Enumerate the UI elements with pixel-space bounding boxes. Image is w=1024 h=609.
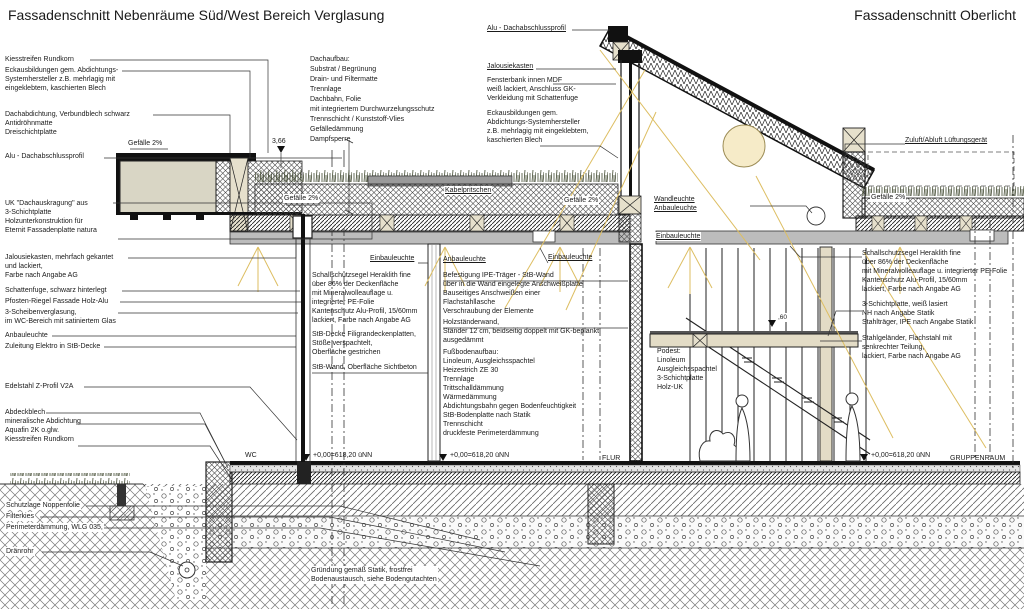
label-draenrohr: Dränrohr: [5, 547, 35, 556]
sitting-child: [699, 430, 740, 461]
label-gelaender: Stahlgeländer, Flachstahl mit senkrechte…: [862, 334, 961, 361]
label-alu-profil-right: Alu - Dachabschlussprofil: [487, 24, 566, 33]
label-abdeckblech: Abdeckblech mineralische Abdichtung Aqua…: [5, 408, 81, 444]
label-uk-dachauskragung: UK "Dachauskragung" aus 3-Schichtplatte …: [5, 199, 97, 235]
label-kiesstreifen-top: Kiesstreifen Rundkorn: [5, 55, 74, 64]
wall-lamp-symbol: [807, 207, 825, 225]
ventilation-unit-outline: [868, 152, 1014, 186]
label-schallschutz-right: Schallschutzsegel Heraklith fine über 86…: [862, 249, 1007, 294]
label-zuleitung: Zuleitung Elektro in StB-Decke: [5, 342, 100, 351]
label-zuluft: Zuluft/Abluft Lüftungsgerät: [905, 136, 987, 145]
label-slope-mid-right: Gefälle 2%: [563, 196, 599, 205]
label-slope-right: Gefälle 2%: [870, 193, 906, 202]
recessed-light-mid: [533, 231, 555, 242]
label-schallschutz-mid: Schallschutzsegel Heraklith fine über 86…: [312, 271, 417, 325]
label-befestigung: Befestigung IPE-Träger - StB-Wand über i…: [443, 271, 583, 316]
label-verglasung: 3-Scheibenverglasung, im WC-Bereich mit …: [5, 308, 116, 326]
foundation-mid: [588, 484, 614, 544]
label-schattenfuge: Schattenfuge, schwarz hinterlegt: [5, 286, 107, 295]
title-left: Fassadenschnitt Nebenräume Süd/West Bere…: [8, 7, 384, 23]
label-einbauleuchte-1: Einbauleuchte: [370, 254, 414, 263]
label-jalousiekasten-right: Jalousiekasten: [487, 62, 533, 71]
post-left: [117, 484, 126, 506]
label-room-gruppenraum: GRUPPENRAUM: [950, 454, 1005, 463]
label-alu-profil-left: Alu - Dachabschlussprofil: [5, 152, 84, 161]
glazing-skylight: [629, 62, 632, 196]
glazing-left: [301, 214, 305, 462]
floor-slab: [230, 461, 1020, 484]
label-dachabdichtung: Dachabdichtung, Verbundblech schwarz Ant…: [5, 110, 130, 137]
facade-section-drawing-sheet: Fassadenschnitt Nebenräume Süd/West Bere…: [0, 0, 1024, 609]
label-eckausbildungen-right: Eckausbildungen gem. Abdichtungs-Systemh…: [487, 109, 589, 145]
label-room-wc: WC: [245, 451, 257, 460]
draenrohr-symbol: [179, 562, 195, 578]
label-slope-mid-left: Gefälle 2%: [283, 194, 319, 203]
recessed-light-right: [970, 230, 994, 241]
label-wandleuchte: Wandleuchte Anbauleuchte: [653, 195, 698, 213]
sun-symbol: [723, 125, 765, 167]
label-podest: Podest: Linoleum Ausgleichsspachtel 3-Sc…: [657, 347, 717, 392]
label-eckausbildungen-left: Eckausbildungen gem. Abdichtungs- System…: [5, 66, 118, 93]
label-slope-canopy: Gefälle 2%: [127, 139, 163, 148]
label-kabelpritschen: Kabelpritschen: [444, 186, 492, 195]
acoustic-ceiling-mid: [230, 232, 630, 244]
label-schichtplatte-right: 3-Schichtplatte, weiß lasiert NH nach An…: [862, 300, 973, 327]
person-figures: [699, 393, 860, 461]
label-elevation-flur: +0,00=618,20 üNN: [450, 451, 509, 460]
title-right: Fassadenschnitt Oberlicht: [854, 7, 1016, 23]
label-anbauleuchte-mid: Anbauleuchte: [443, 255, 486, 264]
label-edelstahl: Edelstahl Z-Profil V2A: [5, 382, 73, 391]
label-room-flur: FLUR: [602, 454, 620, 463]
label-anbauleuchte-left: Anbauleuchte: [5, 331, 48, 340]
label-einbauleuchte-2: Einbauleuchte: [548, 253, 592, 262]
label-gruendung: Gründung gemäß Statik, frostfrei Bodenau…: [310, 566, 438, 584]
foundation-left: [206, 462, 232, 562]
acoustic-ceiling-right: [656, 231, 1008, 244]
podest-beam: [650, 331, 858, 347]
label-holzstaenderwand: Holzständerwand, Ständer 12 cm, beidseit…: [443, 318, 599, 345]
grass-left: [10, 473, 130, 484]
sill-wood-block: [619, 196, 641, 214]
label-fensterbank: Fensterbank innen MDF weiß lackiert, Ans…: [487, 76, 578, 103]
label-perimeterdaemmung: Perimeterdämmung, WLG 035,: [5, 523, 104, 532]
standing-person-1: [736, 395, 750, 461]
label-filterkies: Filterkies: [5, 512, 35, 521]
label-elevation-podest: ,60: [777, 313, 788, 322]
label-elevation-wc: +0,00=618,20 üNN: [313, 451, 372, 460]
label-elevation-gruppenraum: +0,00=618,20 üNN: [871, 451, 930, 460]
label-dachaufbau: Dachaufbau: Substrat / Begrünung Drain- …: [310, 55, 435, 145]
timber-post: [820, 247, 832, 461]
label-stb-decke: StB-Decke Filigrandeckenplatten, Stöße v…: [312, 330, 416, 357]
label-einbauleuchte-3: Einbauleuchte: [655, 232, 701, 241]
label-pfosten-riegel: Pfosten-Riegel Fassade Holz-Alu: [5, 297, 108, 306]
standing-person-2: [846, 393, 860, 461]
label-jalousiekasten-left: Jalousiekasten, mehrfach gekantet und la…: [5, 253, 113, 280]
label-stb-wand: StB-Wand, Oberfläche Sichtbeton: [312, 363, 417, 372]
label-fussbodenaufbau: Fußbodenaufbau: Linoleum, Ausgleichsspac…: [443, 348, 576, 438]
green-roof-mid: [230, 170, 630, 244]
label-elevation-roof: 3,66: [272, 137, 286, 146]
label-noppenfolie: Schutzlage Noppenfolie: [5, 501, 81, 510]
stb-wand: [630, 244, 642, 461]
